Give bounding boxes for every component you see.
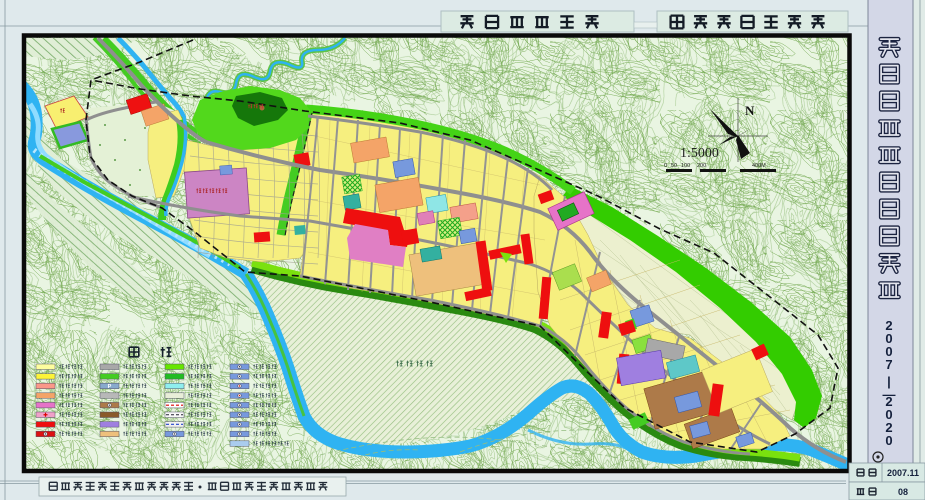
svg-text:2007.11: 2007.11 — [887, 468, 919, 478]
svg-text:N: N — [745, 103, 755, 118]
svg-text:08: 08 — [898, 487, 908, 497]
svg-text:50: 50 — [671, 163, 677, 169]
svg-text:7: 7 — [885, 357, 892, 372]
svg-text:1:5000: 1:5000 — [680, 146, 719, 161]
svg-text:0: 0 — [885, 433, 892, 448]
svg-text:100: 100 — [681, 163, 690, 169]
svg-text:400M: 400M — [752, 163, 766, 169]
svg-text:P: P — [108, 384, 112, 390]
svg-text:0: 0 — [664, 163, 667, 169]
svg-text:200: 200 — [697, 163, 706, 169]
